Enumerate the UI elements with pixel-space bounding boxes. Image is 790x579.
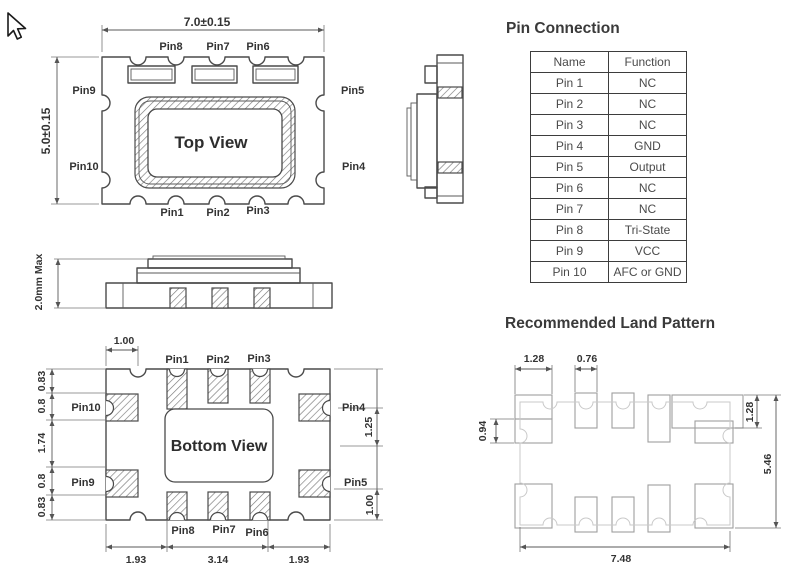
land-pads	[515, 393, 743, 532]
table-cell: NC	[609, 199, 687, 220]
mouse-cursor	[8, 13, 26, 39]
pin-label: Pin4	[342, 161, 366, 173]
pin-label: Pin3	[246, 205, 269, 217]
dim-label: 0.8	[36, 474, 48, 489]
table-row: Pin 8Tri-State	[531, 220, 687, 241]
pin-label: Pin6	[245, 527, 268, 539]
table-cell: Pin 4	[531, 136, 609, 157]
table-row: Pin 1NC	[531, 73, 687, 94]
table-cell: Pin 8	[531, 220, 609, 241]
dim-label: 1.28	[524, 353, 545, 365]
pin-label: Pin1	[165, 354, 188, 366]
pin-label: Pin8	[159, 41, 182, 53]
pin-label: Pin7	[212, 524, 235, 536]
table-row: Pin 2NC	[531, 94, 687, 115]
dim-height-label: 5.0±0.15	[39, 107, 53, 154]
pin-label: Pin2	[206, 207, 229, 219]
dim-width-label: 7.0±0.15	[184, 15, 231, 29]
dim-thickness-label: 2.0mm Max	[33, 254, 45, 311]
lid-seal-pads	[128, 66, 298, 83]
table-row: Pin 6NC	[531, 178, 687, 199]
dim-pad-offset: 1.00	[106, 335, 138, 366]
dim-label: 5.46	[762, 454, 774, 475]
top-view-label: Top View	[174, 133, 248, 152]
pin-function-table: NameFunctionPin 1NCPin 2NCPin 3NCPin 4GN…	[530, 51, 687, 283]
land-pattern-drawing: 1.28 0.76 0.94 1.28 5.46 7.48	[477, 353, 781, 565]
dim-label: 0.94	[477, 421, 489, 442]
dim-left-chain: 0.83 0.8 1.74 0.8 0.83	[36, 369, 106, 520]
table-cell: NC	[609, 178, 687, 199]
table-cell: Pin 2	[531, 94, 609, 115]
table-cell: Output	[609, 157, 687, 178]
pin-label: Pin5	[341, 85, 364, 97]
table-cell: Pin 5	[531, 157, 609, 178]
table-cell: Pin 3	[531, 115, 609, 136]
table-row: Pin 9VCC	[531, 241, 687, 262]
dim-label: 1.93	[126, 554, 147, 566]
pin-connection-title: Pin Connection	[506, 20, 620, 38]
table-cell: Pin 10	[531, 262, 609, 283]
table-cell: AFC or GND	[609, 262, 687, 283]
table-row: Pin 5Output	[531, 157, 687, 178]
pin-table: NameFunctionPin 1NCPin 2NCPin 3NCPin 4GN…	[530, 51, 687, 283]
land-pattern-title: Recommended Land Pattern	[505, 315, 715, 333]
land-dims: 1.28 0.76 0.94 1.28 5.46 7.48	[477, 353, 781, 565]
dim-label: 7.48	[611, 553, 632, 565]
side-view-drawing	[407, 55, 463, 203]
table-cell: GND	[609, 136, 687, 157]
table-cell: NC	[609, 73, 687, 94]
table-cell: VCC	[609, 241, 687, 262]
table-cell: Pin 1	[531, 73, 609, 94]
bottom-view-drawing: Bottom View 1.00 0.83 0.8 1.74 0.8 0.83	[36, 335, 383, 566]
pin-label: Pin2	[206, 354, 229, 366]
bottom-view-label: Bottom View	[171, 438, 268, 455]
dim-height: 5.0±0.15	[39, 57, 99, 204]
pin-label: Pin10	[71, 402, 100, 414]
pin-label: Pin10	[69, 161, 98, 173]
pin-label: Pin7	[206, 41, 229, 53]
pin-label: Pin3	[247, 353, 270, 365]
pin-label: Pin9	[72, 85, 95, 97]
profile-view-drawing: 2.0mm Max	[33, 254, 332, 311]
table-cell: Pin 6	[531, 178, 609, 199]
pin-label: Pin4	[342, 402, 366, 414]
dim-label: 1.93	[289, 554, 310, 566]
dim-label: 1.25	[363, 417, 375, 438]
datasheet-page: Top View 7.0±0.15 5.0±0.15 Pin8 Pin7 Pin…	[0, 0, 790, 579]
pin-label: Pin5	[344, 477, 367, 489]
pin-label: Pin1	[160, 207, 183, 219]
table-row: Pin 3NC	[531, 115, 687, 136]
dim-label: 1.00	[364, 495, 376, 516]
table-cell: Pin 9	[531, 241, 609, 262]
dim-label: 0.76	[577, 353, 598, 365]
pin-label: Pin6	[246, 41, 269, 53]
table-header-cell: Name	[531, 52, 609, 73]
table-row: Pin 4GND	[531, 136, 687, 157]
dim-label: 3.14	[208, 554, 229, 566]
dim-thickness: 2.0mm Max	[33, 254, 148, 311]
top-view-drawing: Top View 7.0±0.15 5.0±0.15 Pin8 Pin7 Pin…	[39, 15, 366, 219]
dim-label: 0.83	[36, 371, 48, 392]
dim-label: 1.28	[744, 402, 756, 423]
table-cell: Tri-State	[609, 220, 687, 241]
table-row: Pin 7NC	[531, 199, 687, 220]
dim-label: 0.83	[36, 497, 48, 518]
table-header-cell: Function	[609, 52, 687, 73]
table-cell: NC	[609, 94, 687, 115]
dim-right: 1.25 1.00	[334, 369, 383, 520]
dim-label: 1.00	[114, 335, 135, 347]
table-cell: Pin 7	[531, 199, 609, 220]
pin-label: Pin9	[71, 477, 94, 489]
table-cell: NC	[609, 115, 687, 136]
pin-label: Pin8	[171, 525, 194, 537]
dim-label: 1.74	[36, 433, 48, 454]
dim-label: 0.8	[36, 399, 48, 414]
table-row: Pin 10AFC or GND	[531, 262, 687, 283]
